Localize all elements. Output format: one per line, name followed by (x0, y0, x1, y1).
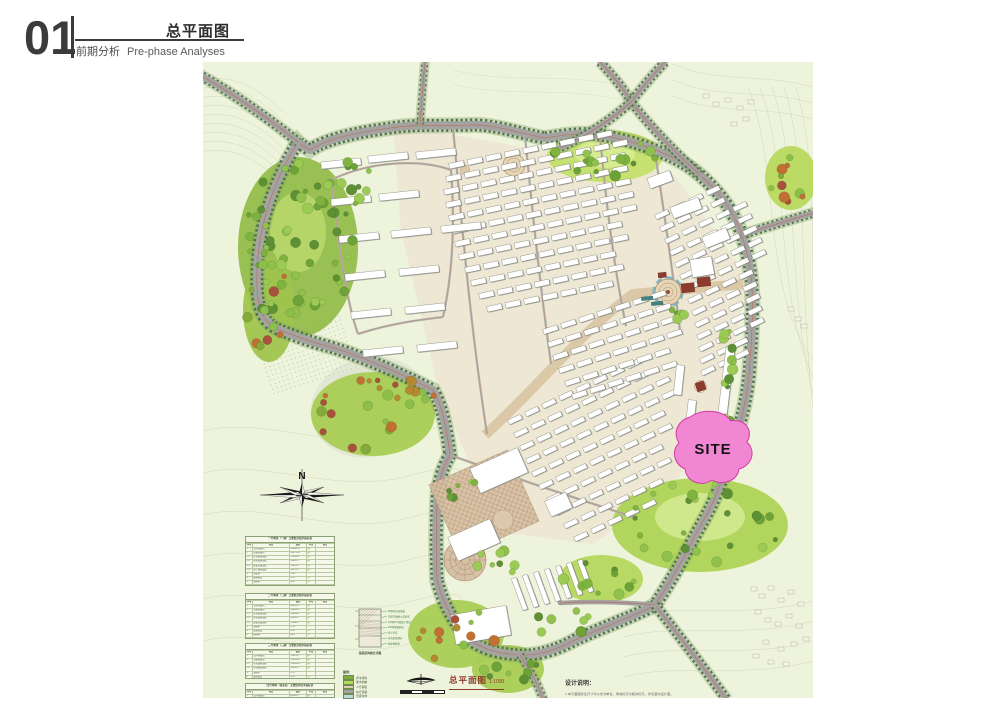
section-callout: 花岗岩路缘石 (388, 636, 403, 640)
table-row: 1总用地面积72415.8㎡ (246, 654, 334, 658)
table-row: 2总建筑面积152830.4㎡ (246, 658, 334, 662)
section-callout: 30厚干硬性水泥砂浆 (388, 614, 410, 618)
table-row: 4建筑密度21.8% (246, 576, 334, 580)
table-row: 2.3配套公建面积15624.8㎡ (246, 564, 334, 568)
subtitle-cn: 前期分析 (76, 46, 120, 58)
table-row: 5绿地率35.6% (246, 580, 334, 584)
table-row: 2.1住宅建筑面积121652.6㎡ (246, 662, 334, 666)
table-row: 2.1住宅建筑面积156208.7㎡ (246, 612, 334, 616)
title-underline (75, 39, 244, 41)
table-row: 4建筑密度20.6% (246, 629, 334, 633)
scale-bar (400, 690, 445, 694)
table-header-row: 序号项目数值单位备注 (246, 600, 334, 604)
indicator-table: 二号地块（二期）主要经济技术指标表序号项目数值单位备注1总用地面积88352.6… (245, 593, 335, 639)
section-callout: 100厚C15混凝土垫层 (388, 620, 411, 624)
legend-swatch (343, 694, 354, 699)
table-row: 2总建筑面积198464.3㎡ (246, 608, 334, 612)
table-row: 2.2商业建筑面积26381.5㎡ (246, 559, 334, 563)
table-row: 2.2商业建筑面积16248.3㎡ (246, 666, 334, 670)
page-title: 总平面图 (166, 20, 230, 41)
table-header-row: 序号项目数值单位备注 (246, 650, 334, 654)
table-row: 6总户数1420户 (246, 637, 334, 639)
section-number: 01 (24, 10, 76, 65)
section-callout: 绿化种植带 (388, 641, 401, 645)
table-header-row: 序号项目数值单位备注 (246, 690, 334, 694)
table-row: 2.1住宅建筑面积213506.2㎡ (246, 555, 334, 559)
table-row: 3容积率2.40 (246, 572, 334, 576)
table-header-row: 序号项目数值单位备注 (246, 543, 334, 547)
legend-item: 景观水体 (343, 694, 367, 699)
legend-label: 车行道路 (356, 690, 367, 694)
site-label: SITE (694, 441, 731, 458)
subtitle-en: Pre-phase Analyses (127, 46, 225, 58)
section-callout: 60厚花岗岩铺装 (388, 609, 406, 613)
indicator-table: 四号地块（商业区）主要经济技术指标表序号项目数值单位备注1总用地面积65280.… (245, 683, 335, 698)
presentation-page: 01 总平面图 前期分析Pre-phase Analyses (0, 0, 1000, 707)
table-row: 2总建筑面积265731.8㎡ (246, 551, 334, 555)
table-row: 2.3配套公建面积12086.1㎡ (246, 621, 334, 625)
design-notes: 设计说明： 1.本平面图标注尺寸均以米为单位，场地标高为相对标高，详见竖向设计图… (565, 678, 790, 696)
table-row: 5绿地率36.8% (246, 633, 334, 637)
table-row: 6总户数1856户 (246, 584, 334, 586)
legend-label: 人行铺装 (356, 685, 367, 689)
indicator-tables: 一号地块（一期）主要经济技术指标表序号项目数值单位备注1总用地面积106482.… (245, 536, 335, 698)
header-divider (71, 16, 74, 58)
master-plan-map: SITE N 一号地块（一期）主要经济技术指标表序号项目数值单位备注1总用地面积… (203, 62, 813, 698)
table-row: 1总用地面积88352.6㎡ (246, 604, 334, 608)
section-caption: 铺装结构做法详图 (359, 651, 382, 655)
table-row: 2.4地下建筑面积10219.3㎡ (246, 568, 334, 572)
section-callout: 素土夯实 (388, 631, 398, 635)
legend-label: 乔木绿化 (356, 676, 367, 680)
compass-north-label: N (298, 471, 305, 482)
table-row: 2.2商业建筑面积20145.2㎡ (246, 616, 334, 620)
design-notes-text: 1.本平面图标注尺寸均以米为单位，场地标高为相对标高，详见竖向设计图。 (565, 692, 790, 696)
legend-label: 灌木地被 (356, 680, 367, 684)
table-row: 3容积率2.25 (246, 625, 334, 629)
plan-title-label: 总平面图1:1000 (449, 670, 504, 690)
map-legend: 图例： 乔木绿化灌木地被人行铺装车行道路景观水体 (343, 670, 367, 698)
table-row: 1总用地面积106482.5㎡ (246, 547, 334, 551)
indicator-table: 三号地块（三期）主要经济技术指标表序号项目数值单位备注1总用地面积72415.8… (245, 643, 335, 679)
pavement-section-detail: 60厚花岗岩铺装30厚干硬性水泥砂浆100厚C15混凝土垫层150厚级配碎石素土… (352, 604, 418, 662)
legend-title: 图例： (343, 670, 367, 674)
legend-label: 景观水体 (356, 694, 367, 698)
page-subtitle: 前期分析Pre-phase Analyses (76, 43, 225, 59)
plan-label-text: 总平面图 (449, 675, 487, 685)
section-callout: 150厚级配碎石 (388, 625, 405, 629)
indicator-table: 一号地块（一期）主要经济技术指标表序号项目数值单位备注1总用地面积106482.… (245, 536, 335, 586)
design-notes-title: 设计说明： (565, 678, 790, 687)
table-row: 3容积率2.11 (246, 671, 334, 675)
plan-scale: 1:1000 (489, 679, 504, 685)
